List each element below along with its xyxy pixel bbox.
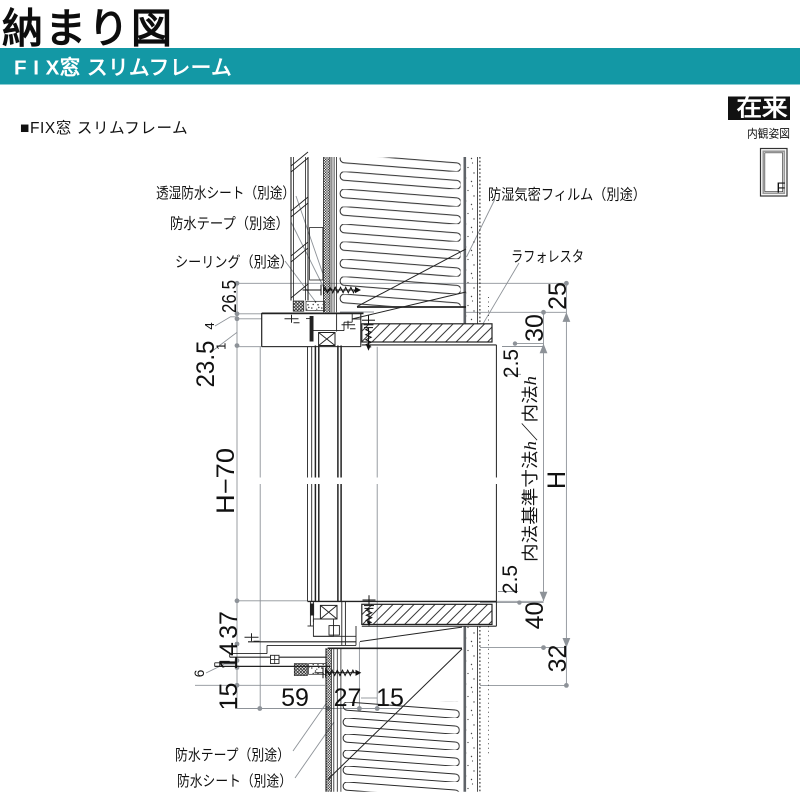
svg-text:防水テープ（別途）: 防水テープ（別途） [175,747,290,764]
svg-text:25: 25 [544,282,572,310]
svg-text:シーリング（別途）: シーリング（別途） [175,254,293,271]
svg-text:14: 14 [215,642,243,670]
svg-text:内観姿図: 内観姿図 [747,127,790,141]
svg-text:■FIX窓 スリムフレーム: ■FIX窓 スリムフレーム [20,119,188,137]
svg-text:F: F [776,180,785,197]
svg-text:15: 15 [215,683,243,711]
svg-text:15: 15 [376,684,404,712]
svg-text:納まり図: 納まり図 [2,6,174,52]
svg-text:内法基準寸法h／内法h: 内法基準寸法h／内法h [521,376,540,562]
svg-text:2.5: 2.5 [500,349,523,378]
svg-text:防湿気密フィルム（別途）: 防湿気密フィルム（別途） [488,187,646,204]
svg-text:在来: 在来 [737,95,789,121]
svg-text:H−70: H−70 [212,448,240,514]
svg-text:59: 59 [281,684,309,712]
svg-text:32: 32 [544,645,572,673]
svg-text:F I X窓 スリムフレーム: F I X窓 スリムフレーム [14,56,232,80]
svg-text:2.5: 2.5 [499,565,522,594]
svg-text:30: 30 [521,314,549,342]
svg-text:37: 37 [215,611,243,639]
svg-text:透湿防水シート（別途）: 透湿防水シート（別途） [156,185,295,202]
svg-text:27: 27 [334,684,362,712]
svg-text:ラフォレスタ: ラフォレスタ [511,249,584,266]
svg-text:4: 4 [202,322,217,329]
svg-text:26.5: 26.5 [219,280,241,313]
svg-text:1: 1 [214,343,229,350]
svg-text:40: 40 [521,602,549,630]
svg-text:H: H [543,471,571,489]
svg-text:防水シート（別途）: 防水シート（別途） [177,773,292,790]
svg-text:6: 6 [191,669,207,677]
svg-text:防水テープ（別途）: 防水テープ（別途） [170,216,289,233]
